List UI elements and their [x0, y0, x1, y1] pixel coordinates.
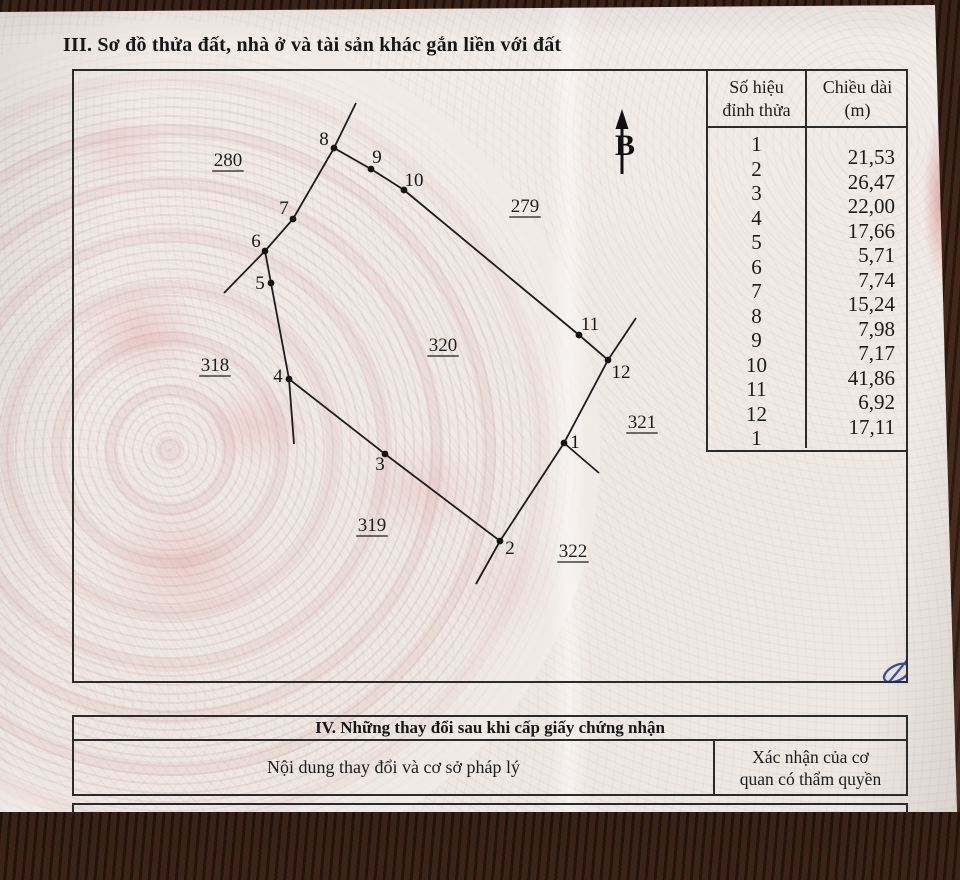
vertex-id: 1	[708, 132, 805, 157]
next-section-partial-box	[72, 803, 908, 814]
vertex-id: 7	[708, 279, 805, 304]
vertex-dot	[262, 248, 269, 255]
vertex-label: 4	[273, 366, 283, 387]
section4-col2-header-line1: Xác nhận của cơ	[752, 746, 869, 768]
vertex-table-header-col1: Số hiệu đỉnh thửa	[708, 71, 805, 126]
edge-length: 7,98	[807, 317, 895, 342]
edge-length: 22,00	[807, 194, 895, 219]
boundary-extension-line	[564, 443, 599, 473]
edge-length: 26,47	[807, 170, 895, 195]
vertex-id: 6	[708, 255, 805, 280]
vertex-dot	[268, 280, 275, 287]
vertex-dot	[561, 440, 568, 447]
edge-length: 7,74	[807, 268, 895, 293]
vertex-id: 3	[708, 181, 805, 206]
vertex-id: 8	[708, 304, 805, 329]
edge-length: 41,86	[807, 366, 895, 391]
vertex-label: 1	[570, 432, 580, 453]
edge-length: 5,71	[807, 243, 895, 268]
vertex-id: 2	[708, 157, 805, 182]
vertex-label: 8	[319, 129, 329, 150]
vertex-dot	[331, 145, 338, 152]
edge-length: 21,53	[807, 145, 895, 170]
vertex-id: 11	[708, 377, 805, 402]
edge-length: 17,66	[807, 219, 895, 244]
vertex-dot	[605, 357, 612, 364]
vertex-table-header-col1-line1: Số hiệu	[708, 76, 805, 99]
vertex-table-header-col2-line1: Chiều dài	[807, 76, 908, 99]
boundary-extension-line	[476, 541, 500, 584]
section4-header-row: Nội dung thay đổi và cơ sở pháp lý Xác n…	[74, 741, 906, 794]
vertex-label: 6	[251, 231, 261, 252]
vertex-table-body: 1234567891011121 21,5326,4722,0017,665,7…	[708, 128, 908, 448]
boundary-extension-line	[334, 103, 356, 148]
section3-title: III. Sơ đồ thửa đất, nhà ở và tài sản kh…	[63, 34, 561, 57]
edge-length: 6,92	[807, 390, 895, 415]
section4-col1-header: Nội dung thay đổi và cơ sở pháp lý	[74, 741, 713, 794]
vertex-table-header: Số hiệu đỉnh thửa Chiều dài (m)	[708, 71, 908, 128]
vertex-label: 11	[581, 314, 599, 335]
photo-background: III. Sơ đồ thửa đất, nhà ở và tài sản kh…	[0, 0, 960, 812]
vertex-table: Số hiệu đỉnh thửa Chiều dài (m) 12345678…	[706, 71, 908, 452]
parcel-map-box: 123456789101112280279318320321319322B Số…	[72, 69, 908, 683]
north-arrow-head	[616, 109, 629, 129]
vertex-table-header-col2: Chiều dài (m)	[805, 71, 908, 126]
vertex-label: 2	[505, 538, 515, 559]
parcel-number-label: 320	[429, 335, 458, 356]
vertex-id: 12	[708, 402, 805, 427]
edge-length: 17,11	[807, 415, 895, 440]
section4-box: IV. Những thay đổi sau khi cấp giấy chứn…	[72, 715, 908, 796]
vertex-table-header-col2-line2: (m)	[807, 99, 908, 122]
boundary-extension-line	[608, 318, 636, 360]
north-arrow-label: B	[615, 129, 635, 162]
edge-length: 7,17	[807, 341, 895, 366]
vertex-label: 10	[405, 170, 424, 191]
parcel-number-label: 279	[511, 196, 540, 217]
vertex-id: 1	[708, 426, 805, 451]
parcel-number-label: 280	[214, 150, 243, 171]
section4-col2-header-line2: quan có thẩm quyền	[740, 768, 881, 790]
edge-length: 15,24	[807, 292, 895, 317]
parcel-number-label: 318	[201, 355, 230, 376]
vertex-label: 9	[372, 147, 382, 168]
vertex-dot	[286, 376, 293, 383]
edge-length-column: 21,5326,4722,0017,665,717,7415,247,987,1…	[807, 145, 908, 439]
parcel-number-label: 319	[358, 515, 387, 536]
parcel-number-label: 322	[559, 541, 588, 562]
vertex-id: 9	[708, 328, 805, 353]
vertex-id-column: 1234567891011121	[708, 132, 805, 451]
vertex-label: 12	[612, 362, 631, 383]
vertex-id: 4	[708, 206, 805, 231]
vertex-dot	[497, 538, 504, 545]
certificate-content: III. Sơ đồ thửa đất, nhà ở và tài sản kh…	[0, 0, 960, 812]
parcel-number-label: 321	[628, 412, 657, 433]
section4-title: IV. Những thay đổi sau khi cấp giấy chứn…	[74, 717, 906, 741]
boundary-extension-line	[289, 379, 294, 444]
vertex-id: 10	[708, 353, 805, 378]
vertex-table-header-col1-line2: đỉnh thửa	[708, 99, 805, 122]
vertex-label: 3	[375, 454, 385, 475]
vertex-id: 5	[708, 230, 805, 255]
vertex-label: 7	[279, 198, 289, 219]
section4-col2-header: Xác nhận của cơ quan có thẩm quyền	[713, 741, 906, 794]
vertex-label: 5	[255, 273, 265, 294]
vertex-dot	[290, 216, 297, 223]
